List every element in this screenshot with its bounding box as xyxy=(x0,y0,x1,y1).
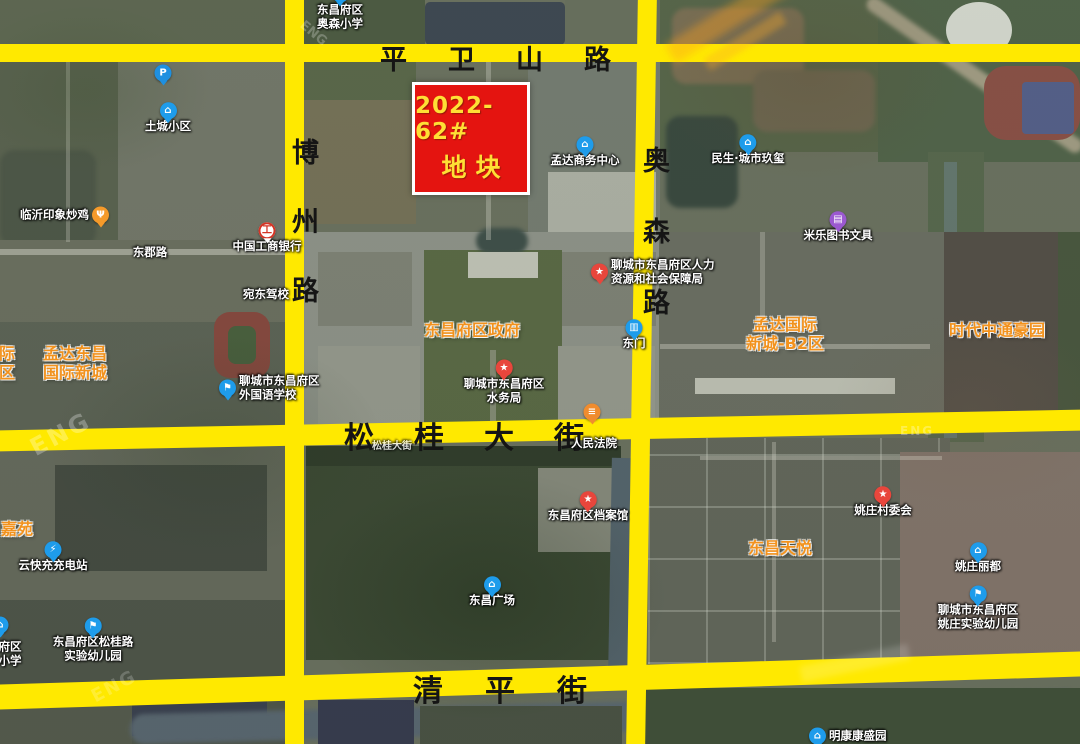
east-gate[interactable]: ▥东门 xyxy=(623,319,646,351)
satellite-map[interactable]: 平卫山路 松桂大街 清平街 博州路 奥森路 2022-62# 地块 P⌂土城小区… xyxy=(0,0,1080,744)
district-archives[interactable]: ★东昌府区档案馆 xyxy=(548,491,629,523)
land-parcel-2022-62[interactable]: 2022-62# 地块 xyxy=(412,82,530,195)
building-icon[interactable]: ⌂ xyxy=(577,136,594,153)
star-icon[interactable]: ★ xyxy=(496,359,513,376)
dongchang-plaza[interactable]: ⌂东昌广场 xyxy=(469,576,515,608)
parking-poi[interactable]: P xyxy=(155,65,172,82)
minsheng-chengshi-jiuxi[interactable]: ⌂民生·城市玖玺 xyxy=(711,134,784,166)
shidai-zhongtong-haoyuan-label: 时代中通豪园 xyxy=(949,322,1045,341)
tucheng-xiaoqu[interactable]: ⌂土城小区 xyxy=(145,102,191,134)
left-partial-school-label: 府区小学 xyxy=(0,640,22,667)
court-poi[interactable]: ≡ xyxy=(584,404,601,421)
icbc-bank[interactable]: 工中国工商银行 xyxy=(233,222,302,254)
district-government-label: 东昌府区政府 xyxy=(424,322,520,341)
dongjun-road-label-label: 东郡路 xyxy=(133,246,168,260)
left-edge-poi[interactable]: ⌂ xyxy=(0,617,9,634)
parcel-label-line2: 地块 xyxy=(441,148,509,184)
charge-icon[interactable]: ⚡ xyxy=(45,541,62,558)
court-icon[interactable]: ≡ xyxy=(584,404,601,421)
peoples-court-label-label: 人民法院 xyxy=(571,437,617,451)
mengda-dongchang-intl-label: 孟达东昌国际新城 xyxy=(43,345,107,383)
dongjun-road-label: 东郡路 xyxy=(133,246,168,260)
songgui-basemap-label-label: 松桂大街 xyxy=(372,441,412,453)
yaozhuang-kindergarten-label: 聊城市东昌府区姚庄实验幼儿园 xyxy=(938,603,1019,630)
yaozhuang-lidu[interactable]: ⌂姚庄丽都 xyxy=(955,542,1001,574)
gate-icon[interactable]: ▥ xyxy=(626,319,643,336)
building-icon[interactable]: ⌂ xyxy=(970,542,987,559)
mile-books-stationery[interactable]: ▤米乐图书文具 xyxy=(804,211,873,243)
linyi-yinxiang-chaoji-label: 临沂印象炒鸡 xyxy=(20,208,89,222)
food-icon[interactable]: Ψ xyxy=(92,207,109,224)
water-affairs-bureau[interactable]: ★聊城市东昌府区水务局 xyxy=(464,359,545,404)
shidai-zhongtong-haoyuan: 时代中通豪园 xyxy=(949,322,1045,341)
building-icon[interactable]: ⌂ xyxy=(160,102,177,119)
mengda-intl-b2: 孟达国际新城-B2区 xyxy=(746,316,824,354)
mengda-intl-b2-label: 孟达国际新城-B2区 xyxy=(746,316,824,354)
foreign-language-school[interactable]: ⚑聊城市东昌府区外国语学校 xyxy=(219,374,320,401)
mengda-business-center[interactable]: ⌂孟达商务中心 xyxy=(551,136,620,168)
mingkang-kangshengyuan-label: 明康康盛园 xyxy=(829,729,887,743)
hr-social-security-bureau[interactable]: ★聊城市东昌府区人力资源和社会保障局 xyxy=(591,258,715,285)
yaozhuang-village-committee[interactable]: ★姚庄村委会 xyxy=(854,486,912,518)
road-label-qingping: 清平街 xyxy=(413,666,629,710)
school-icon[interactable]: ⚑ xyxy=(85,617,102,634)
left-edge-partial-label-label: 际区 xyxy=(0,345,15,383)
wandong-driving-school-label: 宛东驾校 xyxy=(243,288,289,302)
songgui-basemap-label: 松桂大街 xyxy=(372,441,412,453)
songgui-road-kindergarten[interactable]: ⚑东昌府区松桂路实验幼儿园 xyxy=(53,617,134,662)
jiayuan-label-label: 嘉苑 xyxy=(1,521,33,540)
peoples-court-label: 人民法院 xyxy=(571,437,617,451)
parking-icon[interactable]: P xyxy=(155,65,172,82)
book-icon[interactable]: ▤ xyxy=(830,211,847,228)
mengda-dongchang-intl: 孟达东昌国际新城 xyxy=(43,345,107,383)
school-icon[interactable]: ⚑ xyxy=(219,380,236,397)
dongchang-tianyue: 东昌天悦 xyxy=(748,540,812,559)
star-icon[interactable]: ★ xyxy=(875,486,892,503)
building-icon[interactable]: ⌂ xyxy=(0,617,9,634)
left-partial-school-label-label: 府区小学 xyxy=(0,640,22,667)
mingkang-kangshengyuan[interactable]: ⌂明康康盛园 xyxy=(809,728,887,744)
songgui-road-kindergarten-label: 东昌府区松桂路实验幼儿园 xyxy=(53,635,134,662)
linyi-yinxiang-chaoji[interactable]: Ψ临沂印象炒鸡 xyxy=(20,207,109,224)
aosen-primary-school[interactable]: ⚑东昌府区奥森小学 xyxy=(317,0,363,31)
parcel-label-line1: 2022-62# xyxy=(415,93,527,145)
yunkuaichong-charging[interactable]: ⚡云快充充电站 xyxy=(19,541,88,573)
plaza-icon[interactable]: ⌂ xyxy=(484,576,501,593)
road-label-pingweishan: 平卫山路 xyxy=(380,38,652,77)
hr-social-security-bureau-label: 聊城市东昌府区人力资源和社会保障局 xyxy=(611,258,715,285)
water-affairs-bureau-label: 聊城市东昌府区水务局 xyxy=(464,377,545,404)
district-government-label-label: 东昌府区政府 xyxy=(424,322,520,341)
dongchang-tianyue-label: 东昌天悦 xyxy=(748,540,812,559)
yaozhuang-kindergarten[interactable]: ⚑聊城市东昌府区姚庄实验幼儿园 xyxy=(938,585,1019,630)
star-icon[interactable]: ★ xyxy=(580,491,597,508)
bank-icon[interactable]: 工 xyxy=(259,222,276,239)
jiayuan-label: 嘉苑 xyxy=(1,521,33,540)
foreign-language-school-label: 聊城市东昌府区外国语学校 xyxy=(239,374,320,401)
school-icon[interactable]: ⚑ xyxy=(970,585,987,602)
building-icon[interactable]: ⌂ xyxy=(740,134,757,151)
building-icon[interactable]: ⌂ xyxy=(809,728,826,744)
road-bozhou xyxy=(285,0,304,744)
left-edge-partial-label: 际区 xyxy=(0,345,15,383)
aosen-primary-school-label: 东昌府区奥森小学 xyxy=(317,3,363,30)
star-icon[interactable]: ★ xyxy=(591,264,608,281)
wandong-driving-school: 宛东驾校 xyxy=(243,288,289,302)
